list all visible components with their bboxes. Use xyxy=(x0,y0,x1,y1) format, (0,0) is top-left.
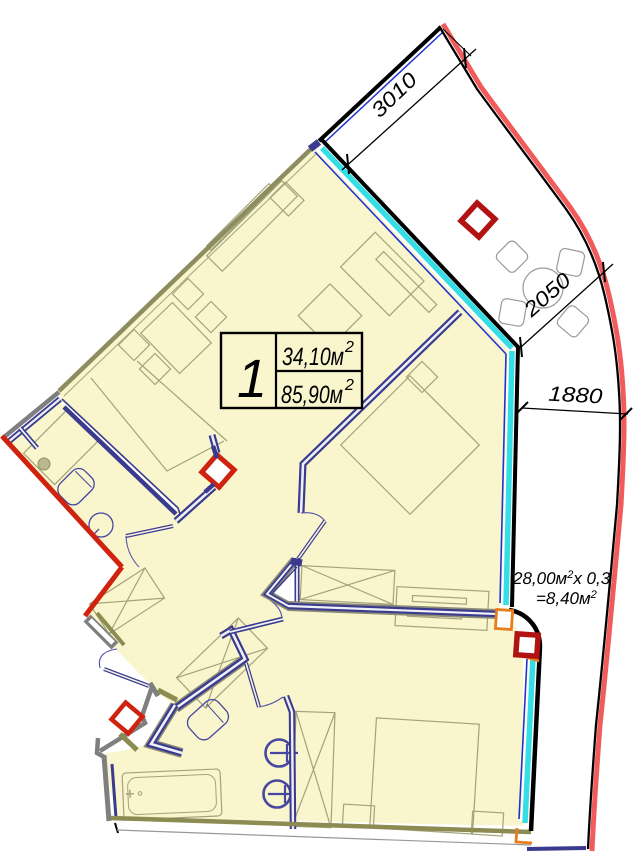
svg-text:1: 1 xyxy=(237,349,267,409)
svg-text:34,10м: 34,10м xyxy=(282,343,344,371)
svg-text:1880: 1880 xyxy=(548,383,603,409)
svg-text:=8,40м2: =8,40м2 xyxy=(536,589,597,608)
svg-text:2: 2 xyxy=(344,339,354,356)
svg-text:85,90м: 85,90м xyxy=(281,381,343,409)
svg-text:28,00м2х 0,3: 28,00м2х 0,3 xyxy=(512,569,611,588)
svg-text:2: 2 xyxy=(344,377,354,394)
